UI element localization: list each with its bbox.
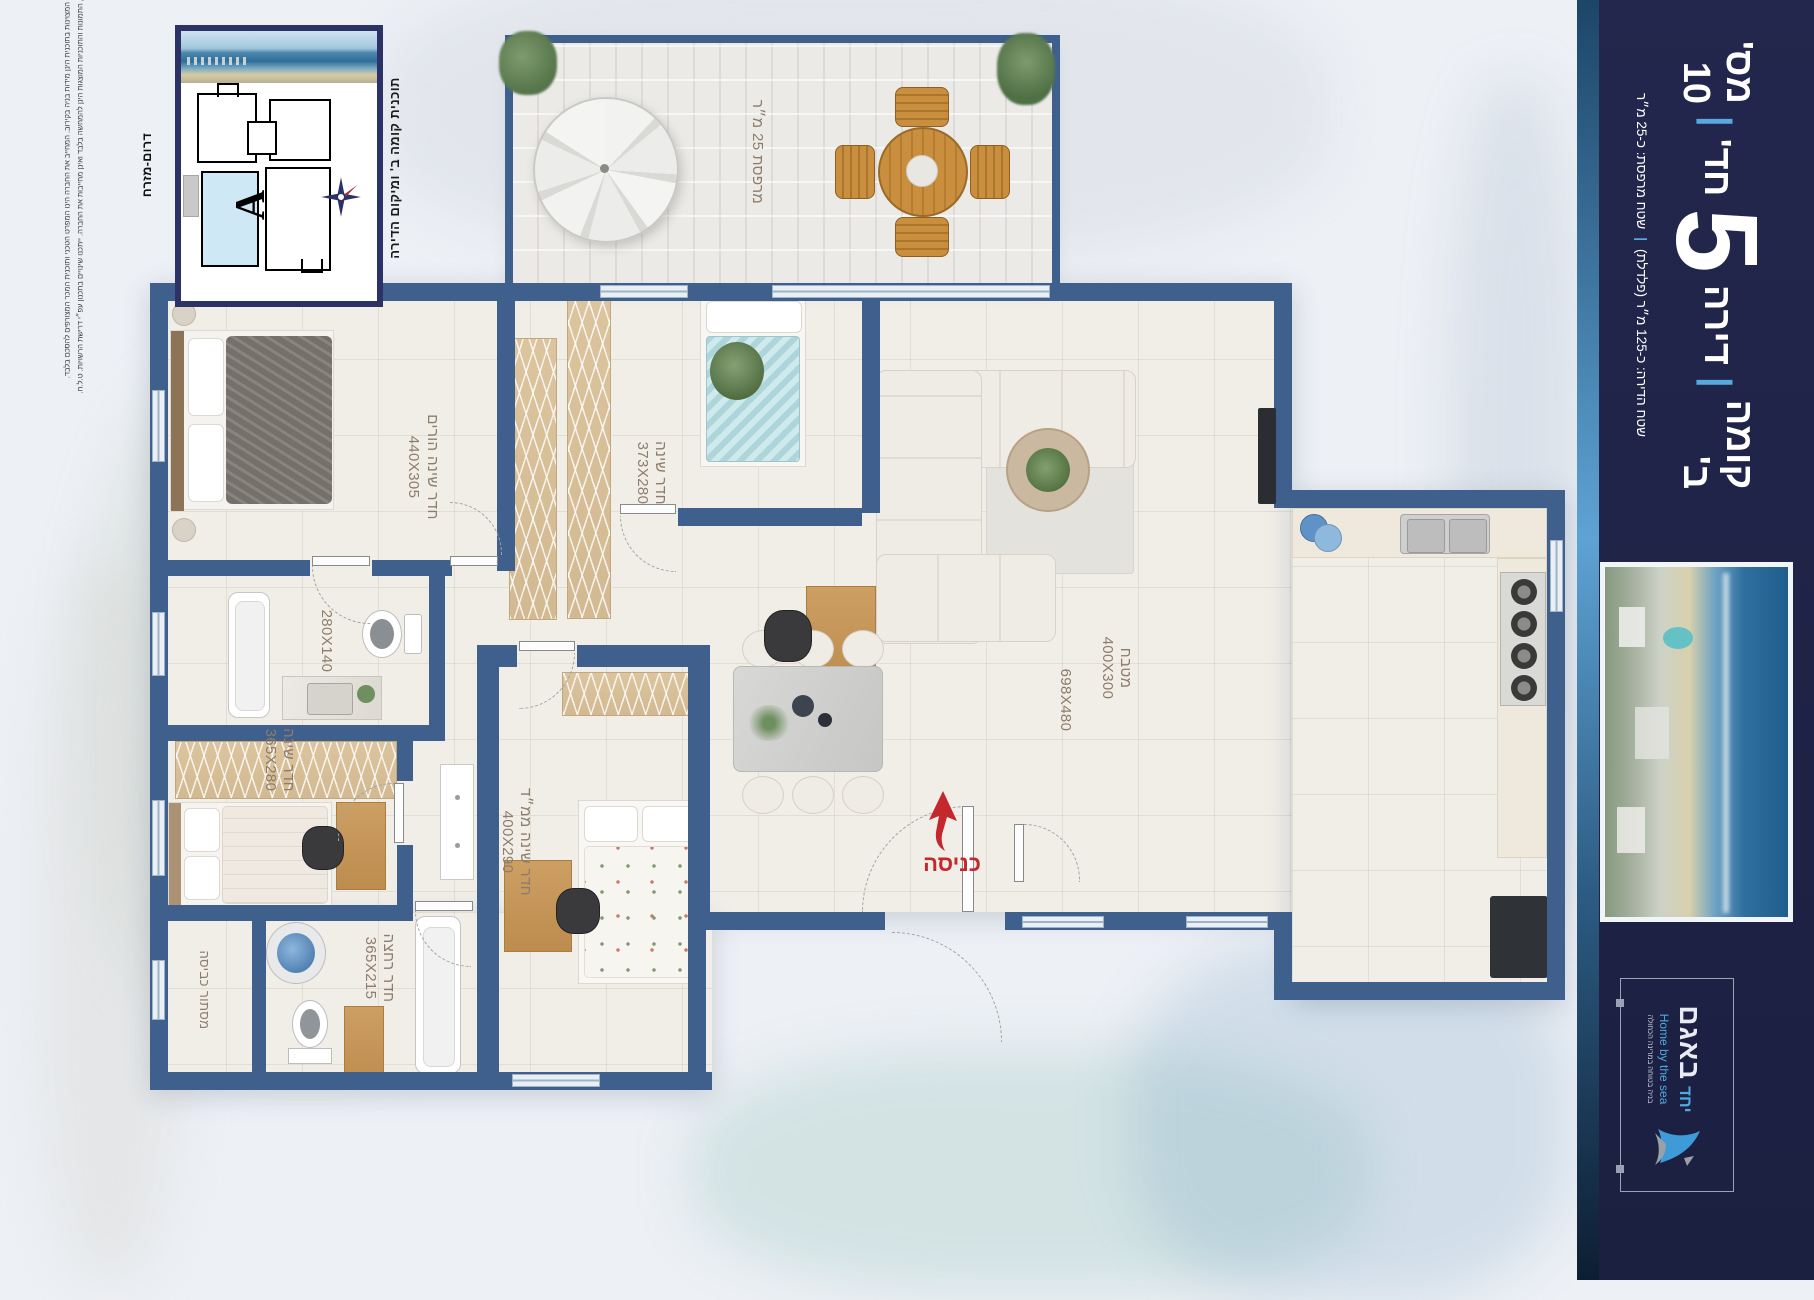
bed2-chair	[764, 610, 812, 662]
burner-1	[1511, 579, 1537, 605]
window-mamad-bottom	[512, 1074, 600, 1087]
bath2-toilet	[292, 1000, 328, 1048]
keyplan-title: תוכנית קומה ב' ומיקום הדירה	[384, 68, 404, 268]
label-laundry: מסתור כביסה	[195, 880, 215, 1100]
door-mamad-leaf	[519, 641, 575, 651]
mamad-pillow-1	[584, 806, 638, 842]
dining-chair-4	[742, 776, 784, 814]
logo-content: יחד באגם Home by the sea בניה בטוחה במרי…	[1628, 986, 1724, 1186]
master-nightstand-bottom	[172, 518, 196, 542]
burner-2	[1511, 611, 1537, 637]
keyplan-tower-upper-right	[269, 99, 331, 161]
label-bath2-name: חדר רחצה	[379, 858, 399, 1078]
bath2-washer	[266, 922, 326, 984]
bath2-toilet-tank	[288, 1048, 332, 1064]
window-corridor-bottom-1	[1022, 916, 1104, 928]
label-mamad-dims: 400X290	[498, 732, 518, 952]
bath1-plant	[357, 685, 375, 703]
label-living-dims: 698X480	[1056, 590, 1076, 810]
photo-surf-line	[1723, 573, 1729, 913]
master-bed-headboard	[171, 331, 184, 511]
keyplan-core	[247, 121, 277, 155]
wall-kitchen-stub	[1274, 912, 1292, 1000]
label-kitchen-name: מטבח	[1116, 558, 1136, 778]
entrance-label: כניסה	[898, 850, 1006, 878]
wardrobe-bed2	[567, 295, 611, 619]
balcony-slider-door	[772, 285, 1050, 298]
keyplan-unit-letter: A	[225, 183, 277, 227]
wall-mamad-top-a	[477, 645, 517, 667]
logo-brand-line: יחד באגם	[1674, 1005, 1706, 1112]
patio-table-centerpiece	[906, 155, 938, 187]
sail-logo-icon	[1650, 1123, 1702, 1167]
window-bath2-left	[152, 960, 165, 1020]
balcony-plant-left	[499, 31, 557, 95]
keyplan-plan-area: A	[181, 83, 377, 301]
photo-pool	[1663, 627, 1693, 649]
master-pillow-1	[188, 338, 224, 416]
wall-bed2-living-divider	[862, 283, 880, 513]
headline-sep-2: |	[1696, 116, 1739, 127]
window-master-left	[152, 390, 165, 462]
logo-frame-square-2	[1616, 1165, 1624, 1173]
wall-mamad-right	[688, 667, 710, 912]
wall-living-right	[1274, 283, 1292, 508]
sidebar-gradient-strip	[1577, 0, 1599, 1280]
disclaimer-line-1: כל ההדמיות, התמונות והתוכניות המוצגות הי…	[75, 10, 86, 346]
label-bed2-dims: 373X280	[633, 363, 653, 583]
bath1-toilet-tank	[404, 614, 422, 654]
balcony-wall-top	[505, 35, 1060, 43]
label-bed2-name: חדר שינה	[651, 363, 671, 583]
living-plant-basket	[710, 342, 764, 400]
entrance-exterior-arc	[892, 932, 1002, 1042]
keyplan-marina-dots	[187, 57, 247, 65]
sidebar-headline: קומה ב' | דירה 5 חד' | מס' 10	[1652, 55, 1782, 475]
dining-decor-bowl-2	[818, 713, 832, 727]
window-bath1-left	[152, 612, 165, 676]
door-br3-leaf	[394, 783, 404, 843]
umbrella-pole	[600, 164, 609, 173]
mamad-duvet-floral	[584, 846, 696, 978]
kitchen-hob	[1500, 572, 1546, 706]
wall-kitchen-top	[1274, 490, 1565, 508]
wall-corridor-br3-a	[397, 741, 413, 781]
wall-bath1-right	[429, 576, 445, 741]
sofa-bottom	[876, 554, 1056, 642]
bed2-pillow	[706, 301, 802, 333]
refrigerator	[1490, 896, 1548, 978]
wall-bottom-mid	[694, 912, 885, 930]
label-bed3-name: חדר שינה	[279, 650, 299, 870]
kitchen-dish-stack	[1300, 512, 1342, 554]
dining-chair-6	[842, 776, 884, 814]
bath1-toilet-seat	[370, 619, 394, 649]
kitchen-sink	[1400, 514, 1490, 554]
window-corridor-bottom-2	[1186, 916, 1268, 928]
logo-frame-square-1	[1616, 999, 1624, 1007]
wall-bottom-left	[150, 1072, 712, 1090]
label-mamad-name: חדר שינה ממ״ד	[516, 732, 536, 952]
dining-decor-sprig	[746, 705, 792, 741]
logo-brand-large: באגם	[1674, 1005, 1706, 1080]
burner-4	[1511, 675, 1537, 701]
sink-basin-2	[1449, 519, 1487, 553]
apartment-rooms-count-big: 5	[1671, 208, 1764, 273]
area-sep: |	[1635, 237, 1650, 241]
dining-table	[733, 666, 883, 772]
balcony	[505, 35, 1060, 285]
bed3-pillow-1	[184, 808, 220, 852]
wall-mamad-left	[477, 645, 499, 1090]
hall-cabinet-handle-1	[455, 795, 460, 800]
keyplan-inset: A	[175, 25, 383, 307]
master-duvet	[226, 336, 332, 504]
dining-chair-5	[792, 776, 834, 814]
window-kitchen-right	[1550, 540, 1563, 612]
bed3-headboard	[169, 803, 181, 909]
master-pillow-2	[188, 424, 224, 502]
keyplan-notch-1	[217, 83, 239, 97]
bath2-toilet-seat	[300, 1009, 320, 1039]
logo-tagline-en: Home by the sea	[1658, 1014, 1672, 1105]
orientation-label: דרום-מזרח	[138, 100, 156, 230]
wall-master-bottom-a	[150, 560, 310, 576]
wall-bed2-bottom	[678, 508, 862, 526]
label-master-dims: 440X305	[404, 357, 424, 577]
patio-chair-bottom	[895, 217, 949, 257]
headline-sep-1: |	[1696, 377, 1739, 388]
wall-kitchen-bottom	[1274, 982, 1565, 1000]
label-bed3-dims: 365X280	[261, 650, 281, 870]
burner-3	[1511, 643, 1537, 669]
photo-building-3	[1617, 807, 1645, 853]
door-corridor-right-leaf	[1014, 824, 1024, 882]
compass-rose-icon	[319, 175, 363, 219]
entrance-arrow-icon	[920, 790, 966, 852]
dining-chair-3	[842, 630, 884, 668]
label-kitchen-dims: 400X300	[1098, 558, 1118, 778]
headline-apartment-word: דירה	[1696, 285, 1739, 365]
keyplan-gray-block	[183, 175, 199, 217]
tv-unit	[1258, 408, 1276, 504]
wardrobe-master	[509, 338, 557, 620]
hall-cabinet-handle-2	[455, 843, 460, 848]
headline-apartment-number: מס' 10	[1674, 41, 1760, 104]
label-balcony: מרפסת 25 מ״ר	[748, 42, 768, 262]
wall-mamad-top-b	[577, 645, 710, 667]
wardrobe-mamad	[562, 672, 702, 716]
area-apartment: שטח הדירה: כ-125 מ״ר (פלדלת)	[1635, 249, 1650, 437]
door-bath2-leaf	[415, 901, 473, 911]
dining-decor-bowl-1	[792, 695, 814, 717]
sink-basin-1	[1407, 519, 1445, 553]
keyplan-notch-2	[301, 259, 323, 273]
logo-text-column: יחד באגם Home by the sea בניה בטוחה במרי…	[1647, 1005, 1706, 1112]
label-bath2-dims: 365X215	[361, 858, 381, 1078]
wall-master-bed2-divider	[497, 283, 515, 571]
keyplan-beach-photo	[181, 31, 377, 83]
window-bed2-top	[600, 285, 688, 298]
sidebar-project-photo	[1600, 562, 1793, 922]
patio-chair-top	[895, 87, 949, 127]
dish-2	[1314, 524, 1342, 552]
label-master-name: חדר שינה הורים	[423, 357, 443, 577]
window-br3-left	[152, 800, 165, 876]
headline-rooms-unit: חד'	[1696, 139, 1739, 197]
label-bath1-dims: 280X140	[317, 531, 337, 751]
patio-chair-right	[970, 145, 1010, 199]
patio-chair-left	[835, 145, 875, 199]
wall-laundry-divider	[252, 921, 266, 1072]
disclaimer-line-2: המידות המצוינות בתוכנית הינן מידות בניה …	[62, 10, 73, 346]
balcony-plant-right	[997, 33, 1055, 105]
photo-building-2	[1635, 707, 1669, 759]
coffee-table-plant	[1026, 448, 1070, 492]
logo-tagline-he: בניה בטוחה במרינה הכחולה	[1647, 1015, 1656, 1104]
wall-mamad-right-lower	[688, 912, 706, 1090]
mamad-chair	[556, 888, 600, 934]
door-master-leaf	[450, 556, 498, 566]
bath2-washer-drum	[277, 933, 315, 973]
photo-building-1	[1619, 607, 1645, 647]
sidebar-areas: שטח הדירה: כ-125 מ״ר (פלדלת) | שטח מרפסת…	[1633, 35, 1651, 495]
floorplan-sheet: { "sidebar": { "floor": "קומה ב'", "sep"…	[0, 0, 1814, 1280]
logo-brand-small: יחד	[1676, 1086, 1696, 1113]
area-balcony: שטח מרפסת: כ-25 מ״ר	[1635, 93, 1650, 229]
hall-cabinet	[440, 764, 474, 880]
headline-floor: קומה ב'	[1674, 400, 1760, 490]
